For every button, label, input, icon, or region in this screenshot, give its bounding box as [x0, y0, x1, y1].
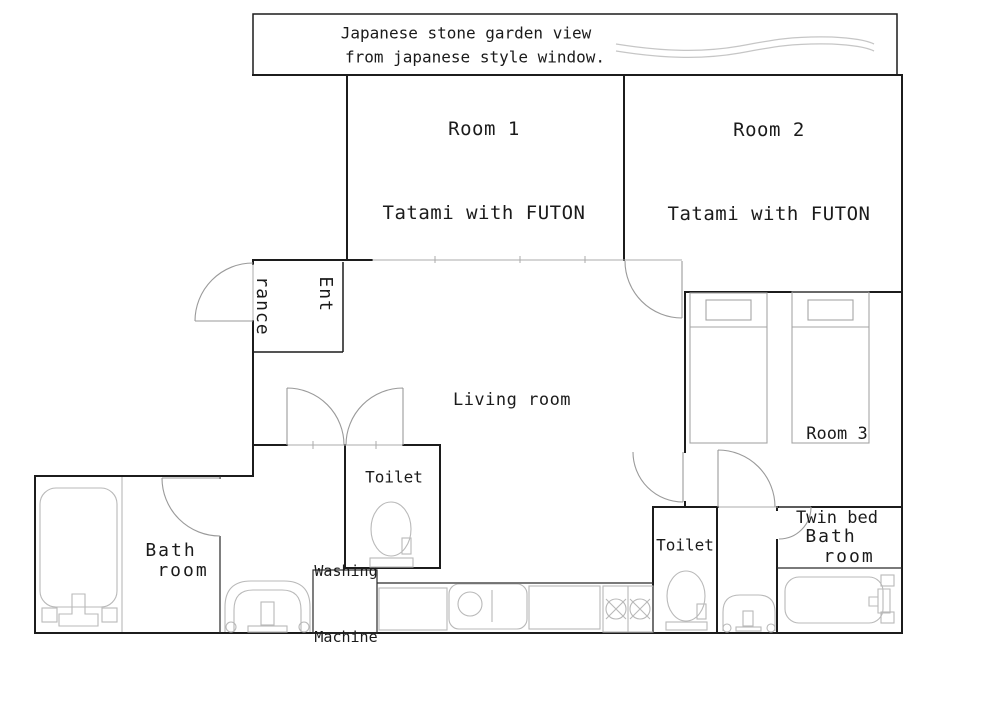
room2-desc: Tatami with FUTON: [668, 200, 871, 228]
kitchen-counter-icon: [379, 586, 600, 630]
room1-label: Room 1 Tatami with FUTON: [383, 59, 586, 283]
toilet-right-label: Toilet: [656, 535, 714, 554]
washing-machine-label: Washing Machine: [314, 516, 377, 692]
toilet-left-label: Toilet: [365, 467, 423, 486]
bath-right-label-line2: room: [823, 546, 874, 568]
washbasin-right-icon: [723, 595, 775, 632]
room2-label: Room 2 Tatami with FUTON: [668, 60, 871, 284]
toilet-right-icon: [666, 571, 707, 630]
living-room-label: Living room: [453, 390, 571, 410]
bath-left-label-line2: room: [157, 560, 208, 582]
window-wave-icon: [616, 37, 874, 58]
washing-machine-label-line1: Washing: [314, 560, 377, 582]
washbasin-left-icon: [225, 581, 310, 632]
room3-door-arc: [718, 450, 775, 507]
floor-plan: Japanese stone garden view from japanese…: [0, 0, 1000, 707]
entrance-label-line1: Ent: [315, 276, 336, 335]
double-door-left-arc: [287, 388, 344, 445]
banner-text-line1: Japanese stone garden view: [341, 23, 591, 42]
double-door-right-arc: [346, 388, 403, 445]
bathtub-left-icon: [40, 477, 122, 632]
room3-name: Room 3: [796, 420, 878, 448]
entrance-label: Ent rance: [210, 276, 378, 335]
bath-right-label-line1: Bath: [805, 526, 856, 548]
bath-left-label-line1: Bath: [145, 540, 196, 562]
bath-left-door-arc: [162, 478, 220, 536]
living-hall-door-arc: [633, 452, 683, 502]
stove-icon: [603, 586, 653, 632]
room1-name: Room 1: [383, 115, 586, 143]
washing-machine-label-line2: Machine: [314, 626, 377, 648]
room2-name: Room 2: [668, 116, 871, 144]
entrance-label-line2: rance: [252, 276, 273, 335]
room1-desc: Tatami with FUTON: [383, 199, 586, 227]
kitchen-sink-icon: [449, 584, 527, 629]
bed-icon: [690, 293, 767, 443]
